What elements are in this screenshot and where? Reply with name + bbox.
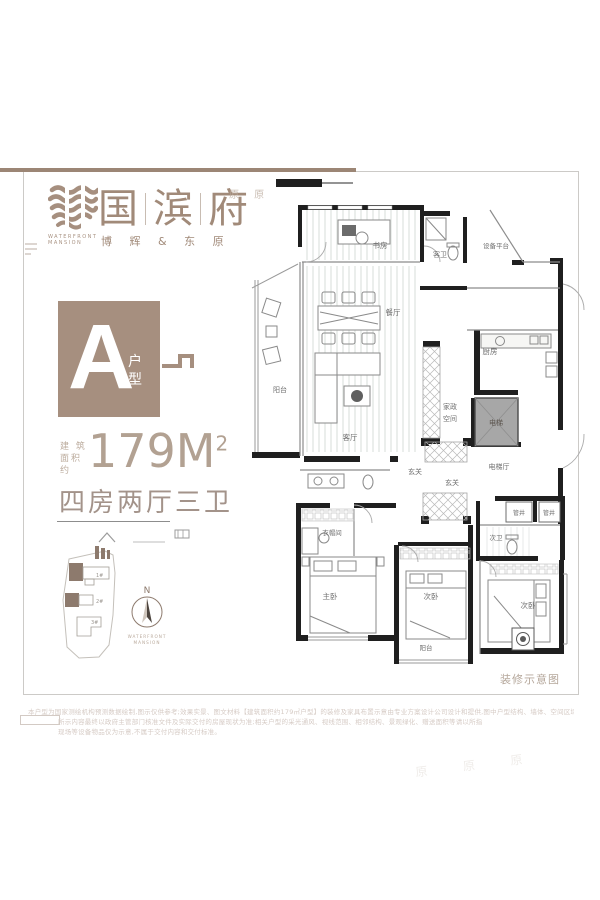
room-elevator-hall: 电梯厅 <box>489 462 510 471</box>
study-windows <box>308 206 392 209</box>
edge-mark <box>25 253 31 255</box>
bedroom2-closet <box>400 548 470 559</box>
watermark-bar <box>276 179 322 187</box>
building3-label: 3# <box>91 620 98 626</box>
room-elevator: 电梯 <box>489 418 503 427</box>
room-equipment-platform: 设备平台 <box>483 241 509 250</box>
room-master: 主卧 <box>323 591 338 601</box>
watermark-bottom-right: 原 原 原 <box>414 749 539 781</box>
area-value: 179M2 <box>88 424 228 478</box>
accent-top-line <box>0 168 356 172</box>
edge-mark <box>25 248 37 250</box>
unit-type-char1: 户 <box>128 351 142 371</box>
edge-mark <box>25 243 37 245</box>
compass-caption2: MANSION <box>134 640 161 645</box>
area-exponent: 2 <box>216 432 229 456</box>
site-plan: 1# 2# 3# N WATERFRONT MANSION <box>55 545 205 670</box>
brand-waves-icon <box>48 184 98 232</box>
disclaimer-line2: 所示内容最终以政府主管部门核准文件及实际交付的房屋现状为准;相关户型的采光通风、… <box>58 716 570 726</box>
room-kitchen: 厨房 <box>483 346 498 356</box>
corridor-cabinet <box>423 493 467 520</box>
cloakroom-closet <box>302 509 354 521</box>
foyer-cabinet <box>425 442 467 462</box>
hook-arrow-icon <box>160 350 200 376</box>
unit-type-box: A 户 型 <box>58 301 160 417</box>
room-bedroom2: 次卧 <box>424 591 439 601</box>
brand-char-1: 国 <box>98 185 138 233</box>
disclaimer-line3: 现场等设备物品仅为示意,不属于交付内容和交付标准。 <box>58 726 358 736</box>
compass: N WATERFRONT MANSION <box>128 586 167 645</box>
building2-label: 2# <box>96 599 103 605</box>
room-housekeeping-1: 家政 <box>443 402 457 411</box>
flyer-page: 国 滨 府 WATERFRONT MANSION 博 辉 & 东 原 原 原 A… <box>0 0 600 900</box>
room-bedroom3: 次卧 <box>521 600 536 610</box>
floor-plan: 书房 客卫 设备平台 餐厅 阳台 客厅 厨房 家政 空间 电梯 玄关 玄关 电梯… <box>250 176 585 692</box>
room-shaft1: 管井 <box>513 509 525 517</box>
room-living: 客厅 <box>343 432 358 442</box>
room-balcony-main: 阳台 <box>273 385 287 394</box>
area-label: 建 筑 面积约 <box>60 441 90 477</box>
brand-divider <box>145 193 146 225</box>
unit-type-char2: 型 <box>128 369 142 389</box>
room-hall-entry: 玄关 <box>445 478 459 487</box>
brand-english: WATERFRONT MANSION <box>48 234 108 246</box>
compass-north-label: N <box>144 586 151 596</box>
building1-label: 1# <box>96 573 103 579</box>
room-cloakroom: 衣帽间 <box>322 528 342 537</box>
room-guest-bath: 客卫 <box>433 250 447 259</box>
building2-block <box>65 593 79 607</box>
unit-letter: A <box>68 303 134 411</box>
room-shaft2: 管井 <box>543 509 555 517</box>
room-housekeeping-2: 空间 <box>443 414 457 423</box>
room-bath2: 次卫 <box>490 533 504 542</box>
disclaimer-box-mark <box>20 715 60 725</box>
building2-outline <box>79 595 93 605</box>
layout-summary: 四房两厅三卫 <box>59 482 233 519</box>
disclaimer-line1: 本户型为国家测绘机构预测数据绘制,图示仅供参考;效果实景、图文材料【建筑面积约1… <box>28 706 574 716</box>
compass-caption1: WATERFRONT <box>128 634 167 639</box>
room-balcony2: 阳台 <box>420 643 433 652</box>
room-study: 书房 <box>373 240 388 250</box>
divider-rule <box>57 521 170 522</box>
brand-divider <box>200 193 201 225</box>
room-dining: 餐厅 <box>386 308 401 317</box>
plan-caption: 装修示意图 <box>500 671 560 687</box>
brand-char-2: 滨 <box>153 185 193 233</box>
room-hall-inner: 玄关 <box>408 467 422 476</box>
site-chimney <box>95 546 110 559</box>
bedroom3-closet <box>490 564 558 574</box>
cabinet-strip <box>423 347 440 438</box>
building1-block <box>69 563 83 581</box>
